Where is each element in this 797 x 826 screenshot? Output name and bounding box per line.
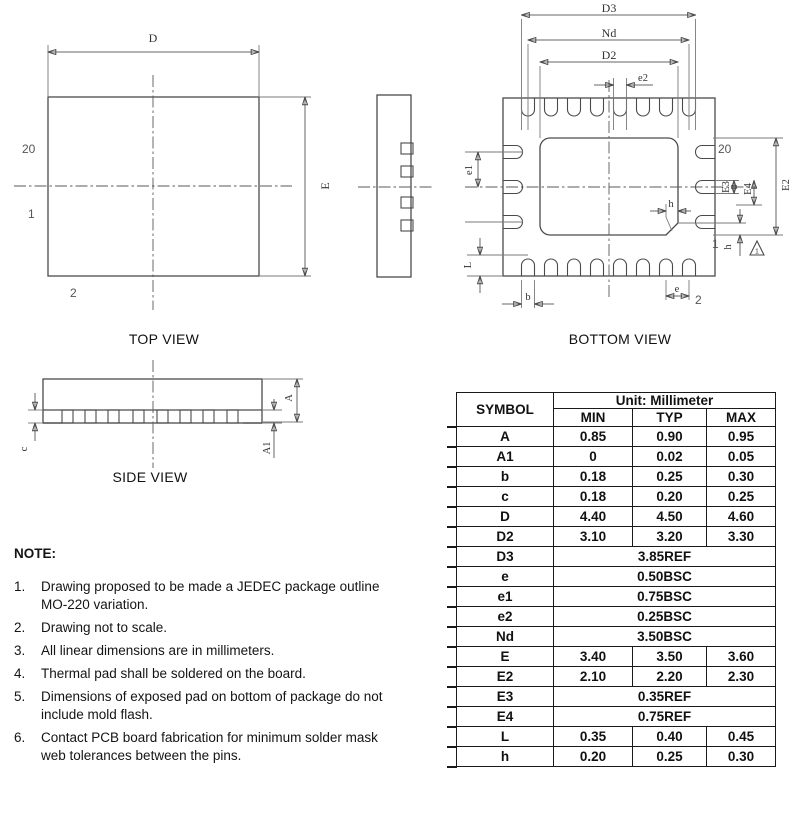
min-cell: 0.20 [554,747,633,767]
dim-label-c: c [19,446,30,451]
dim-b: b [502,280,554,308]
symbol-cell: D2 [457,527,554,547]
min-cell: 4.40 [554,507,633,527]
note-item: 1. Drawing proposed to be made a JEDEC p… [14,578,414,614]
dim-label-b: b [525,292,530,303]
symbol-cell: E3 [457,687,554,707]
top-view-dim-D: D [48,31,259,97]
table-row: e20.25BSC [457,607,776,627]
top-view-dim-E: E [259,97,332,276]
dim-label-E: E [318,182,332,189]
note-text: Drawing not to scale. [41,619,386,637]
min-cell: 0.18 [554,467,633,487]
pin-label-2: 2 [70,286,77,300]
symbol-cell: E [457,647,554,667]
note-text: Dimensions of exposed pad on bottom of p… [41,688,386,724]
table-header-max: MAX [707,409,776,427]
dim-label-h-side: h [723,244,734,250]
pin-label-1: 1 [712,237,719,251]
dim-label-e2: e2 [638,73,648,84]
typ-cell: 3.20 [633,527,707,547]
symbol-cell: L [457,727,554,747]
max-cell: 0.45 [707,727,776,747]
table-row: D23.103.203.30 [457,527,776,547]
symbol-cell: h [457,747,554,767]
min-cell: 0.85 [554,427,633,447]
bottom-view-title: BOTTOM VIEW [540,331,700,347]
min-cell: 2.10 [554,667,633,687]
dim-e2: e2 [594,73,653,130]
symbol-cell: D3 [457,547,554,567]
note-item: 3. All linear dimensions are in millimet… [14,642,414,660]
note-number: 1. [14,578,41,614]
typ-cell: 4.50 [633,507,707,527]
symbol-cell: E2 [457,667,554,687]
span-value-cell: 3.85REF [554,547,776,567]
table-row: Nd3.50BSC [457,627,776,647]
bottom-view-drawing: D3 Nd D2 e2 e1 [455,4,797,320]
min-cell: 0.35 [554,727,633,747]
notes-section: NOTE: 1. Drawing proposed to be made a J… [14,545,414,770]
dim-Nd: Nd [528,26,689,130]
pin-label-2: 2 [695,293,702,307]
table-row: E40.75REF [457,707,776,727]
top-edge-pads [522,98,696,116]
dim-label-D3: D3 [602,1,617,15]
note-item: 2. Drawing not to scale. [14,619,414,637]
note-flag-number: 1 [755,249,759,256]
table-header-min: MIN [554,409,633,427]
dimension-table: SYMBOL Unit: Millimeter MIN TYP MAX A0.8… [456,392,776,767]
top-view-body [14,75,292,310]
dim-label-E3: E3 [721,181,732,193]
note-text: Drawing proposed to be made a JEDEC pack… [41,578,386,614]
top-view-title: TOP VIEW [94,331,234,347]
min-cell: 0 [554,447,633,467]
table-row: E30.35REF [457,687,776,707]
max-cell: 0.95 [707,427,776,447]
symbol-cell: A1 [457,447,554,467]
span-value-cell: 0.25BSC [554,607,776,627]
note-text: Contact PCB board fabrication for minimu… [41,729,386,765]
dim-E4: E4 [736,181,762,206]
dim-D3: D3 [522,1,696,130]
span-value-cell: 0.35REF [554,687,776,707]
note-item: 5. Dimensions of exposed pad on bottom o… [14,688,414,724]
typ-cell: 0.40 [633,727,707,747]
dim-h-chamfer: h [650,199,691,231]
dim-L: L [463,238,528,293]
max-cell: 0.30 [707,747,776,767]
table-row: D33.85REF [457,547,776,567]
dim-label-L: L [463,262,474,268]
note-number: 2. [14,619,41,637]
note-flag-triangle-icon: 1 [750,241,764,256]
table-row: A0.850.900.95 [457,427,776,447]
dim-label-h-top: h [668,199,674,210]
symbol-cell: E4 [457,707,554,727]
symbol-cell: b [457,467,554,487]
typ-cell: 0.25 [633,467,707,487]
min-cell: 3.10 [554,527,633,547]
table-header-unit: Unit: Millimeter [554,393,776,409]
dim-label-Nd: Nd [602,26,617,40]
top-view-drawing: D E 20 1 2 [14,14,344,324]
max-cell: 0.30 [707,467,776,487]
dim-label-e1: e1 [464,165,475,175]
symbol-cell: D [457,507,554,527]
table-row: E3.403.503.60 [457,647,776,667]
symbol-cell: e2 [457,607,554,627]
side-view-title: SIDE VIEW [80,469,220,485]
max-cell: 3.60 [707,647,776,667]
dim-label-A1: A1 [262,442,273,455]
symbol-cell: Nd [457,627,554,647]
note-text: Thermal pad shall be soldered on the boa… [41,665,386,683]
max-cell: 4.60 [707,507,776,527]
symbol-cell: e [457,567,554,587]
table-header-typ: TYP [633,409,707,427]
table-row: D4.404.504.60 [457,507,776,527]
dim-label-E4: E4 [743,182,754,194]
span-value-cell: 0.75REF [554,707,776,727]
pin-label-20: 20 [22,142,36,156]
note-item: 6. Contact PCB board fabrication for min… [14,729,414,765]
symbol-cell: e1 [457,587,554,607]
note-number: 6. [14,729,41,765]
pin-label-20: 20 [718,142,732,156]
package-outline-drawing-page: D E 20 1 2 TOP VIEW [0,0,797,826]
min-cell: 3.40 [554,647,633,667]
table-row: e0.50BSC [457,567,776,587]
symbol-cell: A [457,427,554,447]
dim-e: e [666,280,689,300]
note-number: 5. [14,688,41,724]
span-value-cell: 0.50BSC [554,567,776,587]
dim-label-D: D [149,31,158,45]
typ-cell: 2.20 [633,667,707,687]
typ-cell: 3.50 [633,647,707,667]
note-text: All linear dimensions are in millimeters… [41,642,386,660]
max-cell: 3.30 [707,527,776,547]
max-cell: 2.30 [707,667,776,687]
table-row: e10.75BSC [457,587,776,607]
bottom-edge-pads [522,259,696,276]
typ-cell: 0.25 [633,747,707,767]
symbol-cell: c [457,487,554,507]
side-view-pins [62,410,238,423]
dim-label-A: A [284,394,295,402]
max-cell: 0.25 [707,487,776,507]
table-row: h0.200.250.30 [457,747,776,767]
note-item: 4. Thermal pad shall be soldered on the … [14,665,414,683]
typ-cell: 0.20 [633,487,707,507]
dim-label-E2: E2 [781,179,792,191]
dim-c: c [19,393,43,451]
side-view-body [43,360,262,468]
dim-A1: A1 [262,399,282,458]
min-cell: 0.18 [554,487,633,507]
bottom-view-body [465,80,757,300]
table-row: E22.102.202.30 [457,667,776,687]
note-number: 3. [14,642,41,660]
span-value-cell: 0.75BSC [554,587,776,607]
table-row: L0.350.400.45 [457,727,776,747]
note-number: 4. [14,665,41,683]
typ-cell: 0.02 [633,447,707,467]
table-header-symbol: SYMBOL [457,393,554,427]
edge-profile-drawing [350,70,445,305]
table-row: c0.180.200.25 [457,487,776,507]
pin-label-1: 1 [28,207,35,221]
side-view-drawing: c A A1 [10,360,322,472]
notes-heading: NOTE: [14,545,414,563]
profile-body [377,95,411,277]
typ-cell: 0.90 [633,427,707,447]
dim-A: A [262,379,303,422]
span-value-cell: 3.50BSC [554,627,776,647]
table-row: b0.180.250.30 [457,467,776,487]
table-row: A100.020.05 [457,447,776,467]
dim-label-e: e [675,284,680,295]
dim-label-D2: D2 [602,48,617,62]
max-cell: 0.05 [707,447,776,467]
